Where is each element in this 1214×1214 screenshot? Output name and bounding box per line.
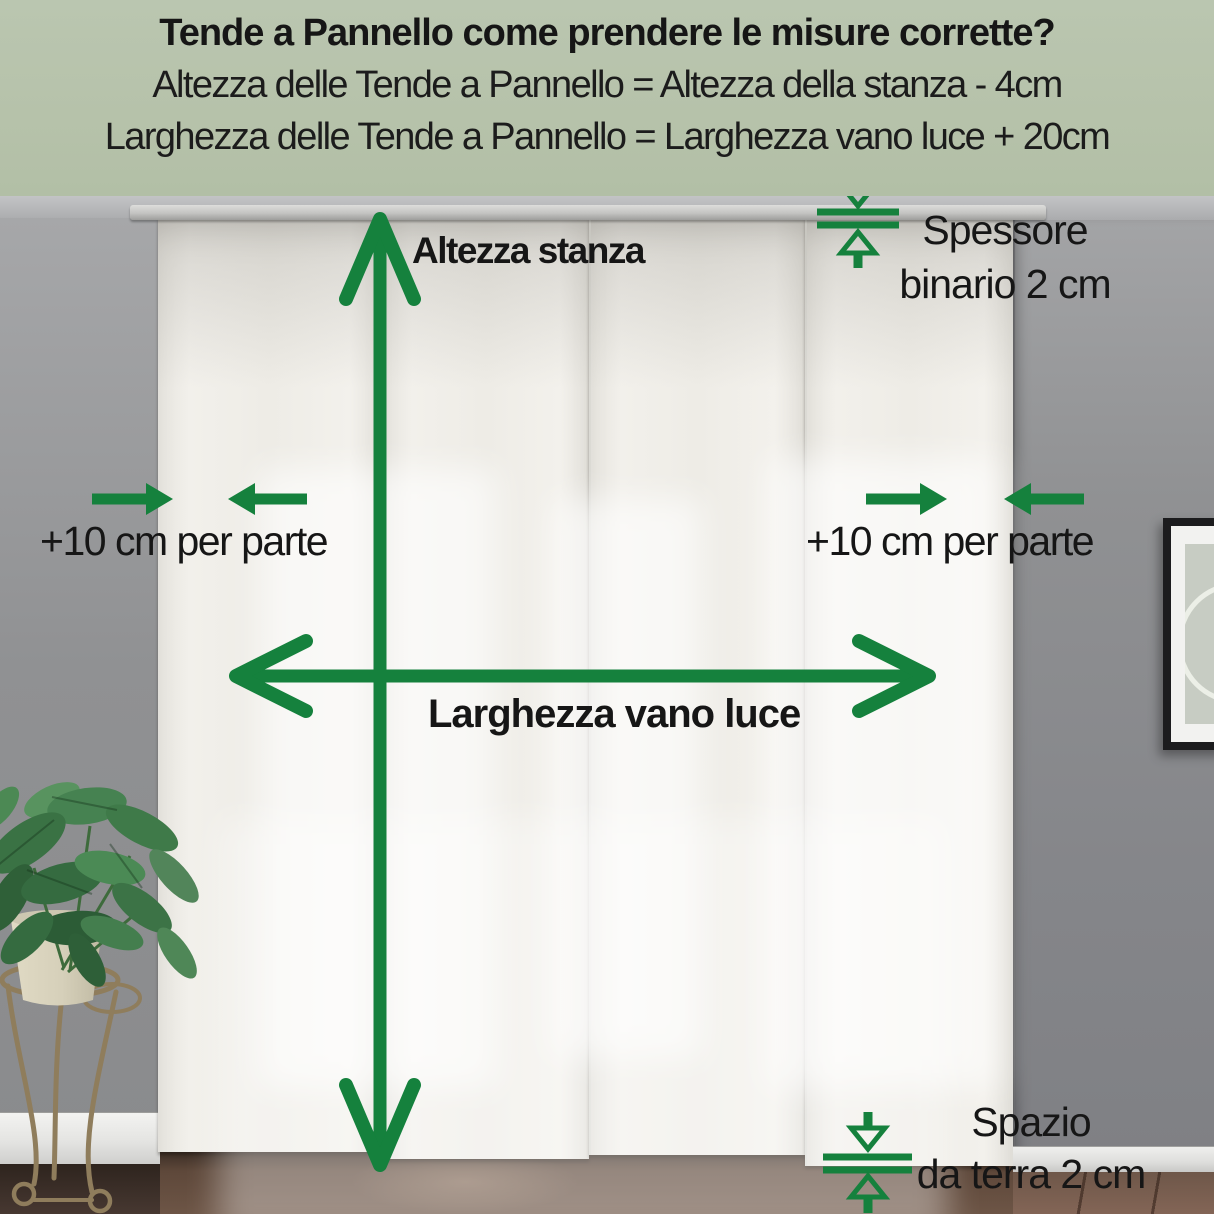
- picture-frame-art: [1185, 544, 1214, 724]
- header-formula-width: Larghezza delle Tende a Pannello = Largh…: [105, 116, 1109, 160]
- floor-gap-line2: da terra 2 cm: [900, 1148, 1162, 1200]
- picture-frame: [1163, 518, 1214, 750]
- picture-frame-circle: [1185, 582, 1214, 704]
- picture-frame-mat: [1171, 526, 1214, 742]
- side-allowance-right-label: +10 cm per parte: [806, 518, 1093, 565]
- header-formula-height: Altezza delle Tende a Pannello = Altezza…: [152, 64, 1061, 108]
- curtain-highlight: [218, 818, 948, 1214]
- room-height-label: Altezza stanza: [412, 230, 644, 272]
- header-title: Tende a Pannello come prendere le misure…: [159, 13, 1054, 55]
- track-thickness-label: Spessore binario 2 cm: [865, 203, 1145, 311]
- infographic: Tende a Pannello come prendere le misure…: [0, 0, 1214, 1214]
- side-allowance-left-label: +10 cm per parte: [40, 518, 327, 565]
- header-band: Tende a Pannello come prendere le misure…: [0, 0, 1214, 196]
- track-thickness-line2: binario 2 cm: [865, 257, 1145, 311]
- track-thickness-line1: Spessore: [865, 203, 1145, 257]
- opening-width-label: Larghezza vano luce: [428, 692, 800, 737]
- floor-gap-label: Spazio da terra 2 cm: [900, 1096, 1162, 1200]
- plant: [0, 748, 202, 1214]
- floor-gap-line1: Spazio: [900, 1096, 1162, 1148]
